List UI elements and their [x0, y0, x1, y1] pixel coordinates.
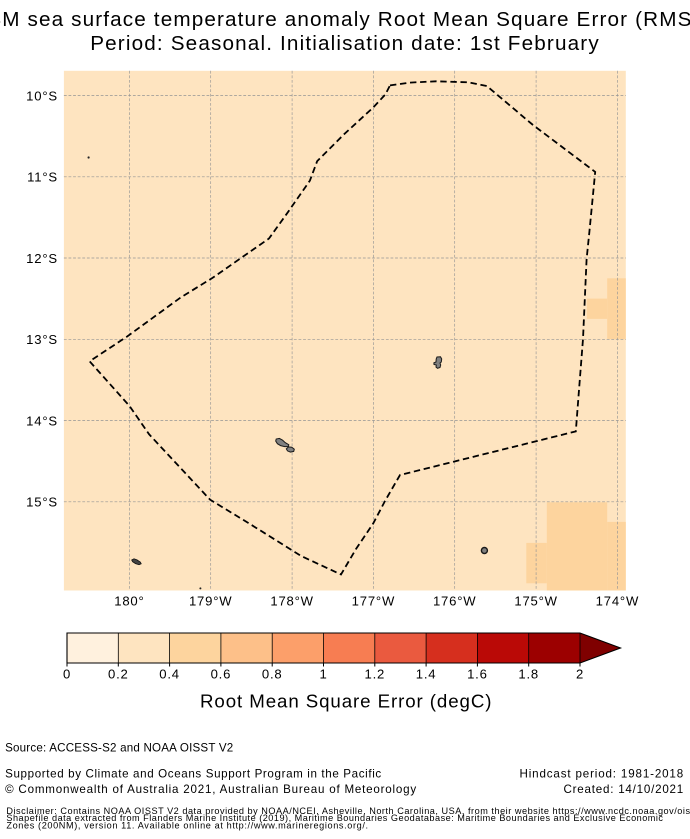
svg-text:Root Mean Square Error (degC): Root Mean Square Error (degC) — [200, 691, 492, 712]
svg-text:1.6: 1.6 — [467, 666, 488, 681]
svg-text:0.6: 0.6 — [211, 666, 232, 681]
svg-text:177°W: 177°W — [352, 593, 395, 608]
svg-text:1.2: 1.2 — [364, 666, 385, 681]
svg-text:Hindcast period: 1981-2018: Hindcast period: 1981-2018 — [520, 767, 684, 780]
svg-text:Period: Seasonal. Initialisati: Period: Seasonal. Initialisation date: 1… — [90, 32, 600, 55]
svg-text:12°S: 12°S — [26, 251, 58, 266]
svg-text:1.4: 1.4 — [416, 666, 437, 681]
svg-text:0.2: 0.2 — [108, 666, 129, 681]
svg-text:180°: 180° — [114, 593, 144, 608]
svg-text:Supported by Climate and Ocean: Supported by Climate and Oceans Support … — [5, 767, 382, 780]
svg-text:11°S: 11°S — [27, 170, 58, 185]
svg-text:0.4: 0.4 — [159, 666, 180, 681]
svg-text:15°S: 15°S — [26, 495, 58, 510]
svg-text:3M sea surface temperature ano: 3M sea surface temperature anomaly Root … — [0, 8, 690, 31]
svg-text:Created: 14/10/2021: Created: 14/10/2021 — [564, 783, 685, 796]
svg-text:Source: ACCESS-S2 and NOAA OIS: Source: ACCESS-S2 and NOAA OISST V2 — [5, 742, 233, 755]
svg-text:0.8: 0.8 — [262, 666, 283, 681]
svg-text:1: 1 — [319, 666, 327, 681]
svg-text:0: 0 — [63, 666, 71, 681]
svg-text:14°S: 14°S — [26, 413, 58, 428]
svg-text:2: 2 — [576, 666, 584, 681]
svg-text:13°S: 13°S — [26, 332, 58, 347]
svg-text:© Commonwealth of Australia 20: © Commonwealth of Australia 2021, Austra… — [5, 783, 417, 796]
svg-text:1.8: 1.8 — [518, 666, 539, 681]
svg-text:179°W: 179°W — [189, 593, 232, 608]
svg-text:178°W: 178°W — [270, 593, 313, 608]
svg-text:Zones (200NM), version 11. Ava: Zones (200NM), version 11. Available onl… — [6, 821, 368, 831]
svg-text:174°W: 174°W — [596, 593, 639, 608]
svg-text:175°W: 175°W — [514, 593, 557, 608]
svg-text:176°W: 176°W — [433, 593, 476, 608]
svg-text:10°S: 10°S — [26, 88, 58, 103]
